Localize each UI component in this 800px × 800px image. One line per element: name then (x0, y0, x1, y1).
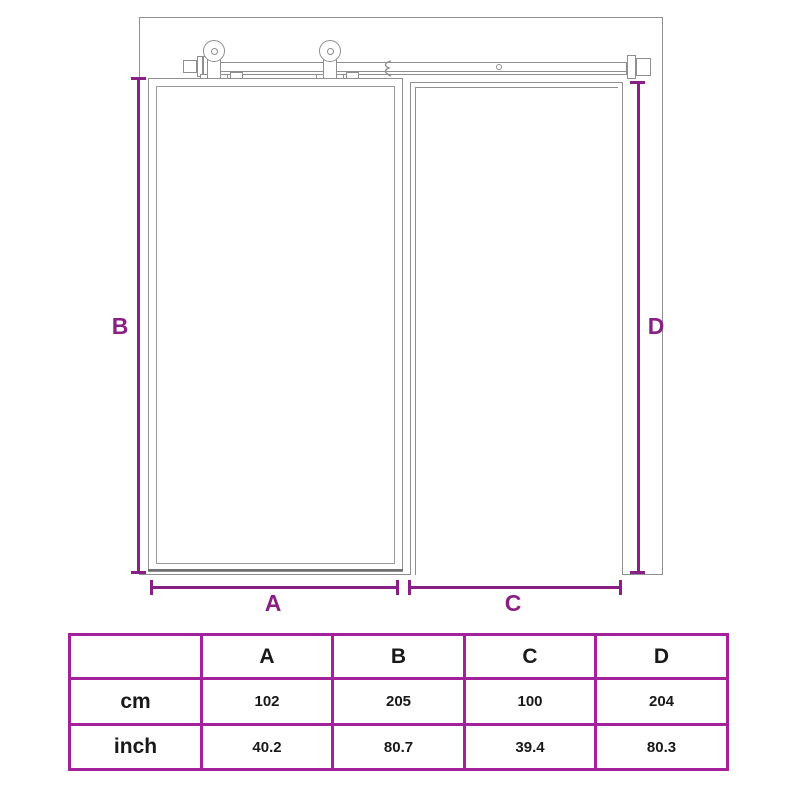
strap-foot-right-b (336, 74, 344, 79)
door-top-plate-right (346, 72, 359, 79)
dimension-tick-d-top (630, 81, 645, 84)
doorway-opening-inner-top (415, 87, 618, 88)
table-header-d: D (596, 635, 728, 679)
dim-label-a: A (253, 592, 293, 615)
strap-foot-left-b (220, 74, 228, 79)
strap-foot-left-a (200, 74, 208, 79)
rail-end-stop-left (183, 60, 197, 73)
dimension-line-a (151, 586, 399, 589)
table-header-b: B (333, 635, 465, 679)
roller-wheel-right-hub (327, 48, 334, 55)
door-panel-inner (156, 86, 395, 564)
dimension-line-c (409, 586, 622, 589)
size-table: A B C D cm 102 205 100 204 inch 40.2 80.… (68, 633, 729, 771)
dimension-tick-b-top (131, 77, 146, 80)
rail-break-mark-icon (380, 60, 394, 77)
dimension-line-b (137, 78, 140, 574)
dimension-tick-b-bot (131, 571, 146, 574)
table-header-empty (70, 635, 202, 679)
table-header-a: A (202, 635, 333, 679)
wall-outline-right (662, 17, 663, 575)
dimension-tick-d-bot (630, 571, 645, 574)
dim-label-b: B (108, 315, 132, 338)
table-header-c: C (465, 635, 596, 679)
inch-value-d: 80.3 (596, 725, 728, 770)
dim-label-d: D (644, 315, 668, 338)
wall-outline-top (139, 17, 663, 18)
dimension-tick-c-right (619, 580, 622, 595)
doorway-opening-left (410, 82, 411, 575)
rail-mounting-hole (496, 64, 502, 70)
door-bottom-edge (148, 569, 403, 571)
cm-value-c: 100 (465, 679, 596, 725)
table-header-row: A B C D (70, 635, 728, 679)
row-label-cm: cm (70, 679, 202, 725)
cm-value-d: 204 (596, 679, 728, 725)
inch-value-a: 40.2 (202, 725, 333, 770)
doorway-opening-right (622, 82, 623, 575)
doorway-opening-top (410, 82, 623, 83)
dimension-line-d (637, 82, 640, 574)
product-dimension-image: B D A C A B C D cm 102 205 100 204 inch (0, 0, 800, 800)
door-top-plate-left (230, 72, 243, 79)
table-row-inch: inch 40.2 80.7 39.4 80.3 (70, 725, 728, 770)
roller-wheel-left-hub (211, 48, 218, 55)
rail-bracket-right (627, 55, 636, 79)
rail-end-cap-right (636, 58, 651, 76)
doorway-opening-inner-left (415, 87, 416, 575)
dimension-tick-a-left (150, 580, 153, 595)
dimension-tick-a-right (396, 580, 399, 595)
track-rail-inner-line (201, 71, 626, 72)
floor-line-left (139, 574, 411, 575)
floor-line-right (622, 574, 663, 575)
cm-value-a: 102 (202, 679, 333, 725)
track-rail (200, 62, 627, 75)
dim-label-c: C (493, 592, 533, 615)
inch-value-b: 80.7 (333, 725, 465, 770)
cm-value-b: 205 (333, 679, 465, 725)
row-label-inch: inch (70, 725, 202, 770)
strap-foot-right-a (316, 74, 324, 79)
table-row-cm: cm 102 205 100 204 (70, 679, 728, 725)
inch-value-c: 39.4 (465, 725, 596, 770)
dimension-tick-c-left (408, 580, 411, 595)
